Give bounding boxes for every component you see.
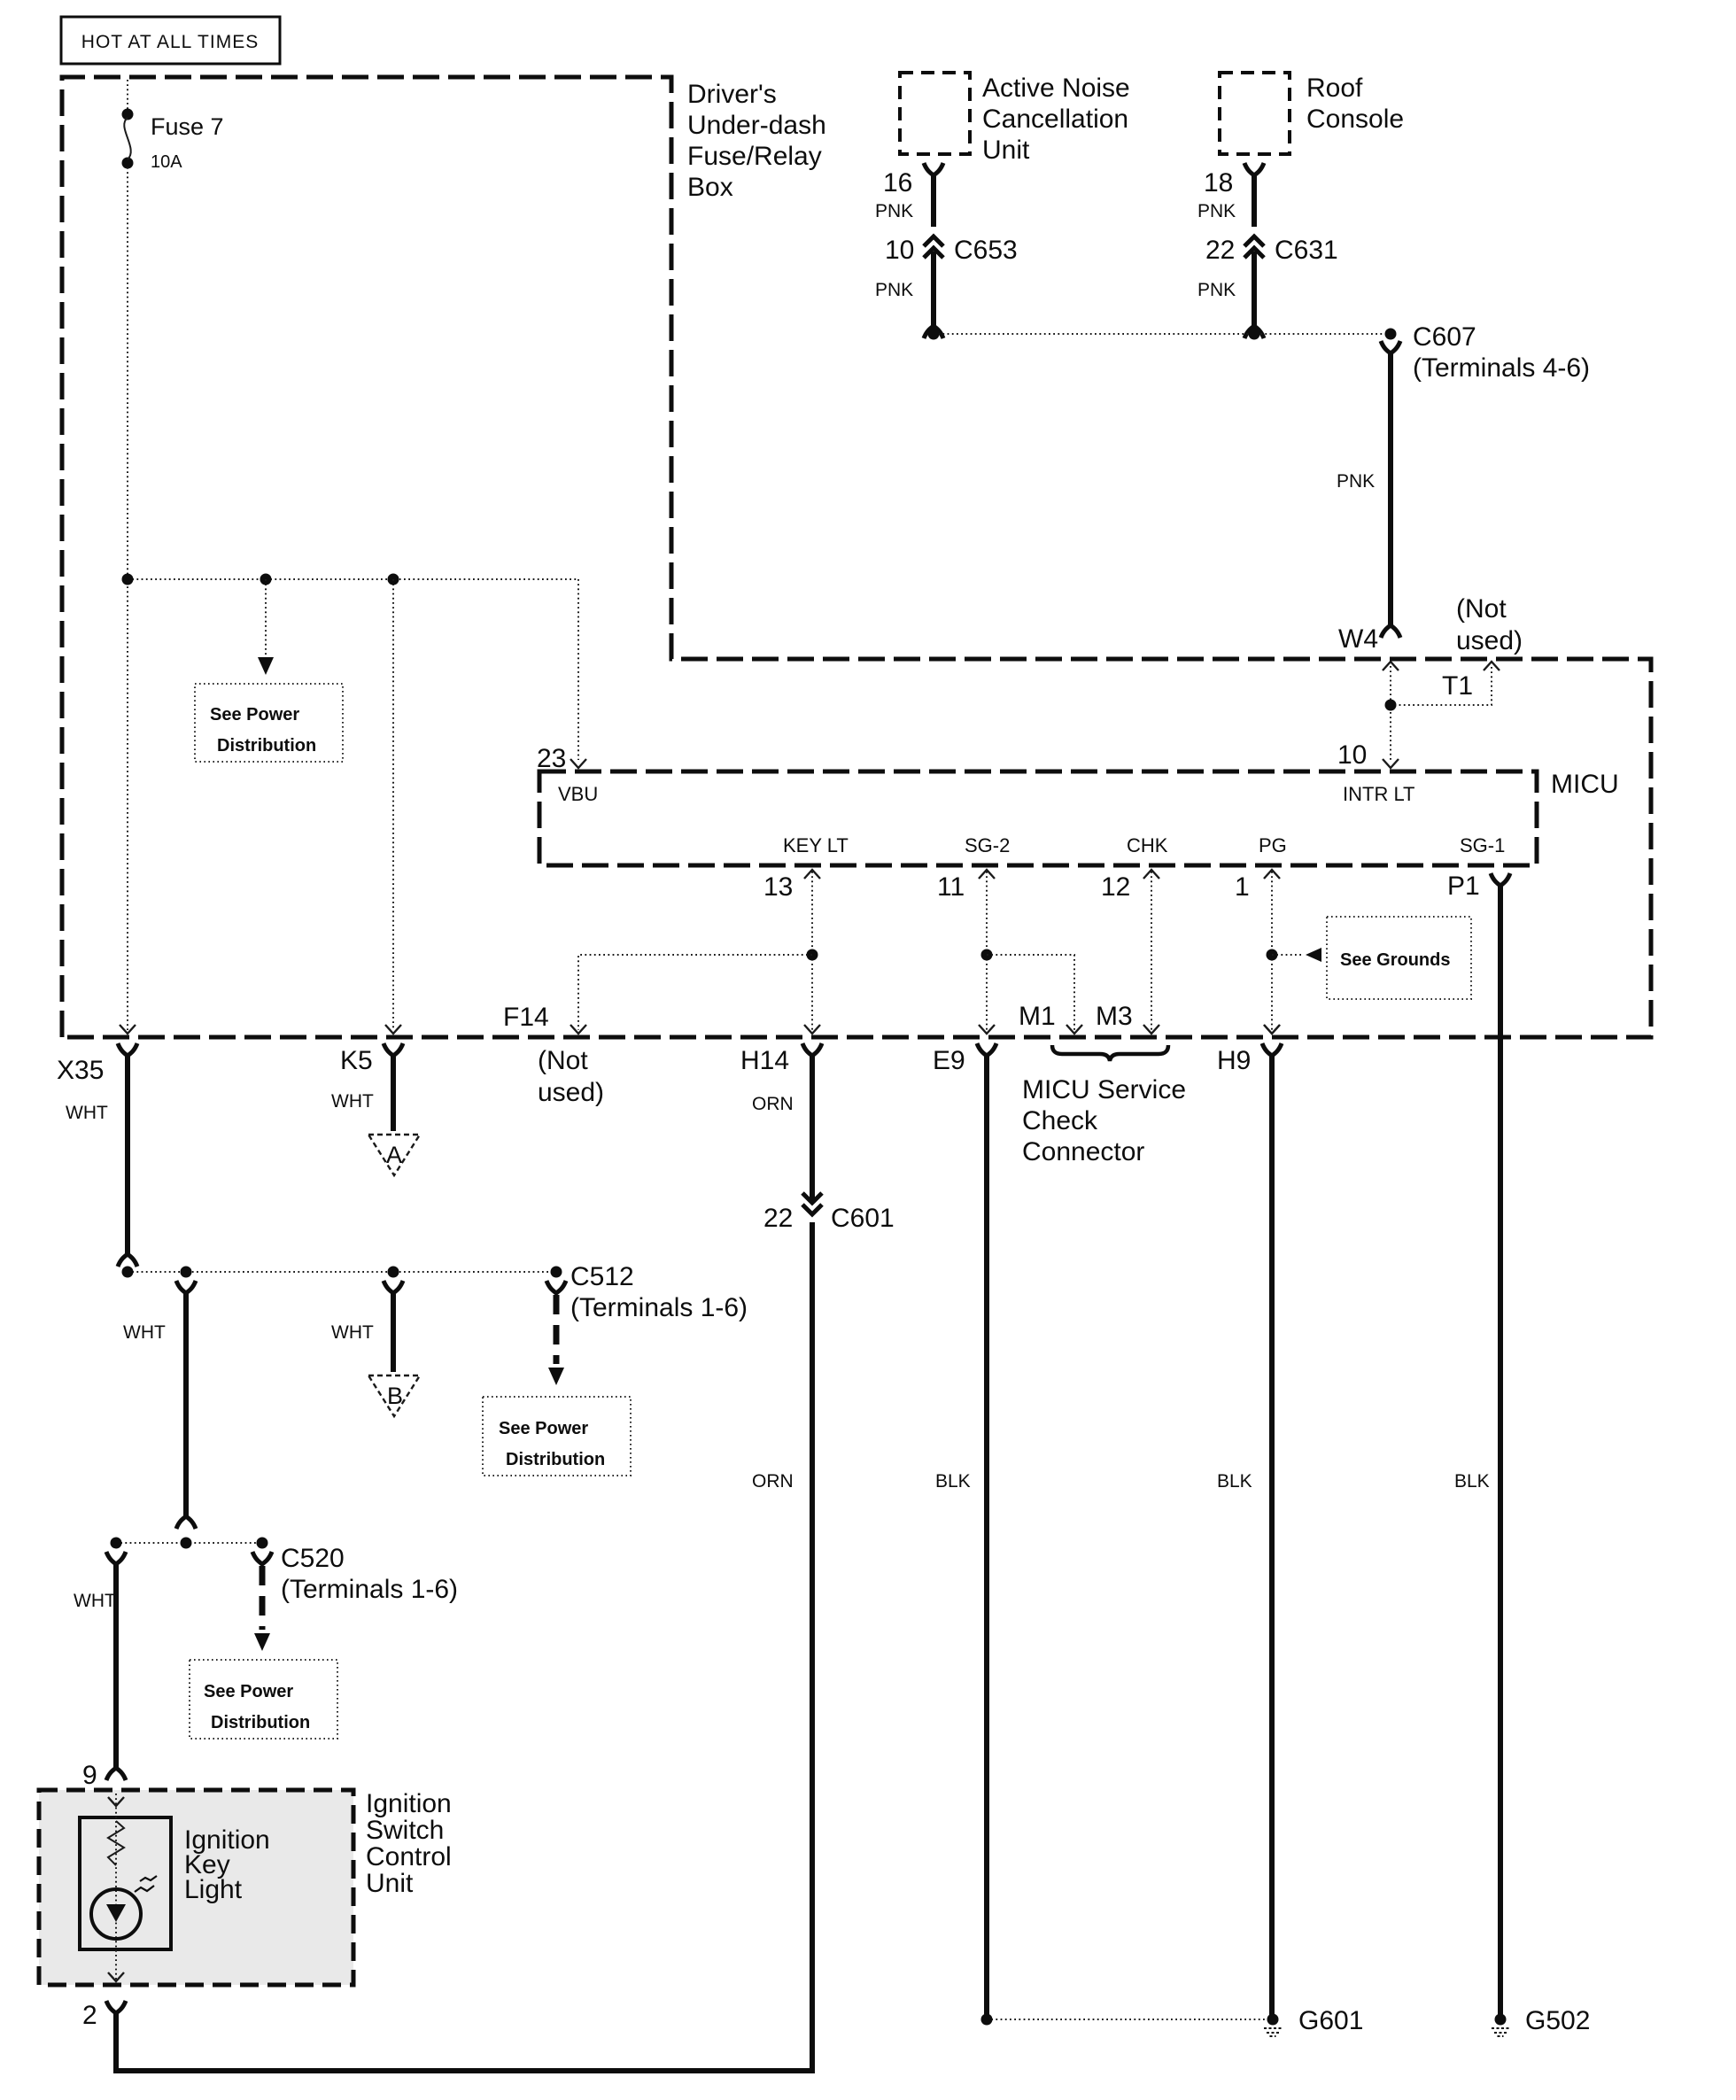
svg-text:MICU: MICU [1551, 770, 1619, 799]
svg-text:C631: C631 [1275, 236, 1338, 265]
svg-text:PG: PG [1259, 834, 1287, 856]
svg-text:12: 12 [1101, 872, 1130, 902]
svg-text:See Power: See Power [210, 705, 299, 725]
svg-text:BLK: BLK [935, 1471, 971, 1492]
svg-text:(Terminals 4-6): (Terminals 4-6) [1413, 353, 1590, 383]
svg-text:PNK: PNK [1197, 280, 1236, 300]
svg-text:BLK: BLK [1454, 1471, 1490, 1492]
svg-text:C653: C653 [954, 236, 1018, 265]
svg-text:Distribution: Distribution [211, 1713, 310, 1732]
svg-text:Console: Console [1306, 105, 1404, 134]
svg-text:22: 22 [763, 1204, 793, 1233]
svg-text:2: 2 [82, 2001, 97, 2030]
svg-text:H9: H9 [1217, 1046, 1251, 1075]
svg-text:22: 22 [1205, 236, 1235, 265]
svg-text:SG-1: SG-1 [1460, 834, 1505, 856]
svg-text:Connector: Connector [1022, 1137, 1144, 1166]
svg-text:Light: Light [184, 1875, 243, 1904]
svg-text:(Not: (Not [538, 1046, 588, 1075]
svg-text:MICU Service: MICU Service [1022, 1075, 1186, 1104]
svg-text:C607: C607 [1413, 322, 1476, 352]
svg-text:(Terminals 1-6): (Terminals 1-6) [281, 1575, 458, 1604]
svg-text:WHT: WHT [331, 1322, 374, 1343]
svg-text:Fuse 7: Fuse 7 [151, 113, 224, 140]
svg-text:(Not: (Not [1456, 594, 1507, 624]
svg-text:T1: T1 [1442, 671, 1473, 701]
svg-text:13: 13 [763, 872, 793, 902]
svg-text:used): used) [1456, 626, 1523, 655]
svg-text:10A: 10A [151, 152, 182, 172]
svg-text:Active Noise: Active Noise [982, 74, 1130, 103]
svg-text:C601: C601 [831, 1204, 895, 1233]
svg-text:See Power: See Power [204, 1682, 293, 1701]
svg-text:Fuse/Relay: Fuse/Relay [687, 142, 822, 171]
svg-text:F14: F14 [503, 1003, 549, 1032]
svg-text:P1: P1 [1447, 872, 1480, 901]
svg-text:K5: K5 [340, 1046, 373, 1075]
svg-text:used): used) [538, 1078, 604, 1107]
svg-text:C520: C520 [281, 1544, 345, 1573]
svg-text:Unit: Unit [366, 1869, 414, 1898]
svg-text:WHT: WHT [123, 1322, 166, 1343]
svg-text:CHK: CHK [1127, 834, 1168, 856]
svg-text:9: 9 [82, 1761, 97, 1790]
svg-text:See Power: See Power [499, 1419, 588, 1438]
svg-text:Check: Check [1022, 1106, 1098, 1135]
svg-text:WHT: WHT [74, 1591, 116, 1611]
svg-text:E9: E9 [933, 1046, 965, 1075]
svg-text:See Grounds: See Grounds [1340, 950, 1450, 970]
svg-text:KEY LT: KEY LT [783, 834, 849, 856]
svg-text:Cancellation: Cancellation [982, 105, 1128, 134]
svg-text:X35: X35 [57, 1056, 104, 1085]
svg-text:A: A [386, 1142, 402, 1168]
svg-text:Under-dash: Under-dash [687, 111, 826, 140]
svg-text:Distribution: Distribution [506, 1450, 605, 1469]
svg-text:C512: C512 [570, 1262, 634, 1291]
svg-text:H14: H14 [740, 1046, 789, 1075]
svg-text:(Terminals 1-6): (Terminals 1-6) [570, 1293, 748, 1322]
svg-text:Distribution: Distribution [217, 736, 316, 756]
svg-text:Control: Control [366, 1842, 452, 1871]
svg-text:PNK: PNK [1337, 471, 1375, 492]
svg-text:PNK: PNK [875, 201, 913, 221]
svg-text:HOT AT ALL TIMES: HOT AT ALL TIMES [81, 32, 259, 52]
svg-text:Box: Box [687, 173, 733, 202]
svg-text:WHT: WHT [66, 1103, 108, 1123]
svg-text:WHT: WHT [331, 1091, 374, 1112]
svg-text:PNK: PNK [1197, 201, 1236, 221]
svg-text:Ignition: Ignition [366, 1789, 452, 1818]
svg-text:W4: W4 [1338, 624, 1378, 654]
svg-text:11: 11 [937, 872, 965, 902]
svg-text:18: 18 [1204, 168, 1233, 198]
svg-text:SG-2: SG-2 [965, 834, 1010, 856]
svg-text:G601: G601 [1298, 2006, 1363, 2035]
svg-text:M3: M3 [1096, 1002, 1133, 1031]
svg-text:10: 10 [1337, 740, 1367, 770]
svg-text:Driver's: Driver's [687, 80, 777, 109]
svg-text:16: 16 [883, 168, 912, 198]
svg-text:BLK: BLK [1217, 1471, 1252, 1492]
svg-text:1: 1 [1235, 872, 1250, 902]
svg-text:Roof: Roof [1306, 74, 1363, 103]
svg-text:INTR LT: INTR LT [1343, 783, 1414, 805]
svg-text:23: 23 [537, 744, 566, 773]
svg-text:PNK: PNK [875, 280, 913, 300]
svg-text:Unit: Unit [982, 136, 1030, 165]
svg-text:ORN: ORN [752, 1094, 794, 1114]
svg-text:ORN: ORN [752, 1471, 794, 1492]
svg-text:M1: M1 [1019, 1002, 1056, 1031]
svg-text:G502: G502 [1525, 2006, 1590, 2035]
svg-text:VBU: VBU [558, 783, 598, 805]
svg-text:10: 10 [885, 236, 914, 265]
svg-text:B: B [387, 1383, 403, 1409]
svg-text:Switch: Switch [366, 1816, 444, 1845]
